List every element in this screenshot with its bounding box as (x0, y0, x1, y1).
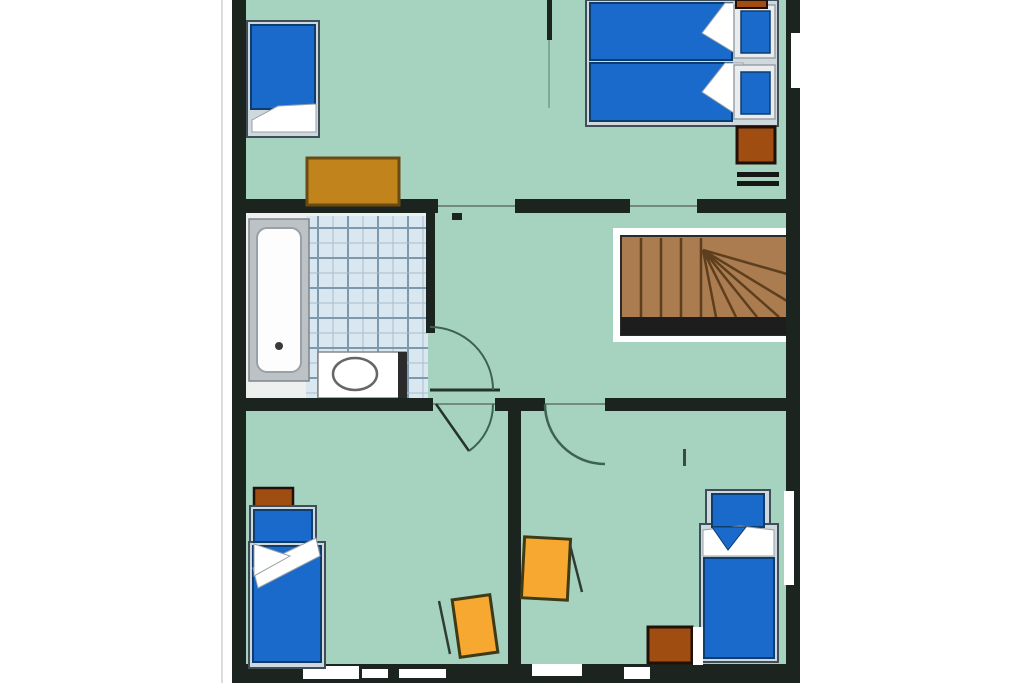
page-edge-line (221, 0, 223, 683)
staircase (613, 228, 795, 342)
nightstand (648, 627, 692, 663)
single-bed-mattress (251, 25, 315, 109)
faint-divider-line (548, 40, 550, 108)
desk-chair (452, 595, 498, 658)
rug-line (737, 172, 779, 177)
toilet-side-panel (398, 352, 407, 398)
rug-line (737, 181, 779, 186)
single-bed-mattress-head (254, 510, 312, 542)
nightstand (737, 127, 775, 163)
bathtub-drain (275, 342, 283, 350)
bottom-window-mullion (388, 667, 399, 679)
floor-plan (0, 0, 1024, 683)
bottom-wall-window-mid (362, 669, 446, 678)
bottom-wall-window-right (624, 667, 650, 679)
single-bed-mattress-head (712, 494, 764, 527)
bottom-wall-window-center (532, 664, 582, 676)
double-bed-pillow-inner (741, 11, 770, 53)
left-wall (232, 0, 246, 683)
toilet-bowl (333, 358, 377, 390)
stair-bottom-edge (621, 317, 789, 335)
double-bed-pillow-inner (741, 72, 770, 114)
cut-off-furniture (736, 0, 767, 8)
floor-plan-image (0, 0, 1024, 683)
single-bed-mattress-foot (704, 558, 774, 658)
right-wall-window-bottom (784, 491, 794, 585)
floor-white-strip (693, 627, 703, 665)
bathroom-right-wall (426, 199, 435, 333)
bathroom (246, 213, 428, 398)
top-rooms-divider-stub (547, 0, 552, 40)
marks (548, 40, 550, 108)
bathtub-basin (257, 228, 301, 372)
bedroom-divider-wall (508, 398, 521, 683)
wall-mark (683, 449, 686, 466)
right-wall-window-top (791, 33, 800, 88)
desk-chair (521, 537, 570, 600)
dresser (307, 158, 399, 205)
